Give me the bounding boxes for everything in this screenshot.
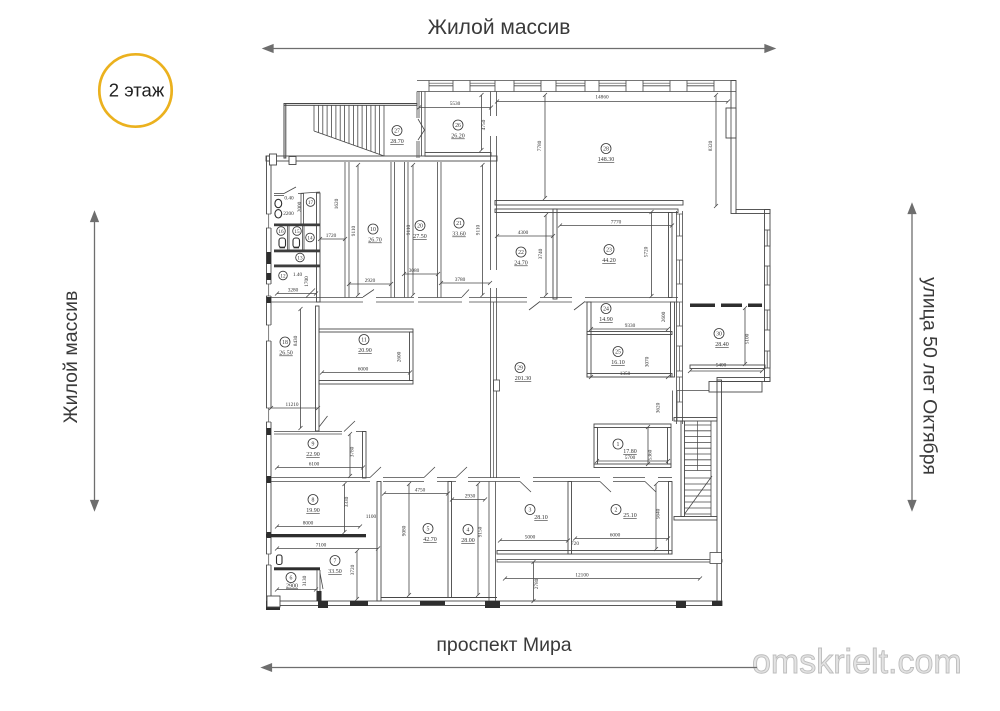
svg-text:9: 9 bbox=[312, 442, 315, 448]
svg-text:3740: 3740 bbox=[538, 248, 544, 259]
svg-text:4750: 4750 bbox=[415, 488, 426, 494]
svg-text:7780: 7780 bbox=[537, 140, 543, 151]
svg-text:8430: 8430 bbox=[293, 335, 299, 346]
svg-text:2600: 2600 bbox=[661, 311, 667, 322]
svg-text:16: 16 bbox=[278, 229, 284, 235]
svg-text:720: 720 bbox=[571, 541, 579, 547]
svg-text:5100: 5100 bbox=[745, 333, 751, 344]
svg-text:21: 21 bbox=[456, 221, 462, 227]
svg-text:5640: 5640 bbox=[656, 508, 662, 519]
svg-text:18: 18 bbox=[282, 340, 288, 346]
svg-text:2 этаж: 2 этаж bbox=[109, 80, 165, 101]
svg-text:1620: 1620 bbox=[334, 198, 340, 209]
svg-text:12: 12 bbox=[280, 274, 286, 280]
svg-text:3070: 3070 bbox=[645, 356, 651, 367]
svg-text:15: 15 bbox=[294, 229, 300, 235]
svg-text:проспект Мира: проспект Мира bbox=[436, 634, 571, 656]
svg-text:24: 24 bbox=[603, 307, 609, 313]
svg-text:12100: 12100 bbox=[575, 573, 589, 579]
svg-text:3620: 3620 bbox=[656, 402, 662, 413]
svg-text:5720: 5720 bbox=[644, 246, 650, 257]
svg-text:25.10: 25.10 bbox=[623, 513, 637, 519]
svg-text:22.90: 22.90 bbox=[306, 452, 320, 458]
svg-text:17.80: 17.80 bbox=[623, 449, 637, 455]
svg-text:27.50: 27.50 bbox=[413, 234, 427, 240]
svg-text:3: 3 bbox=[529, 508, 532, 514]
svg-text:4: 4 bbox=[467, 528, 470, 534]
svg-text:9080: 9080 bbox=[402, 525, 408, 536]
svg-text:26.70: 26.70 bbox=[368, 238, 382, 244]
svg-text:5: 5 bbox=[427, 527, 430, 533]
svg-text:10: 10 bbox=[370, 227, 376, 233]
svg-text:28.70: 28.70 bbox=[390, 139, 404, 145]
svg-text:3280: 3280 bbox=[288, 288, 299, 294]
svg-text:24.70: 24.70 bbox=[514, 261, 528, 267]
svg-text:7100: 7100 bbox=[316, 543, 327, 549]
svg-text:3130: 3130 bbox=[302, 575, 308, 586]
svg-text:7770: 7770 bbox=[611, 220, 622, 226]
svg-text:148.30: 148.30 bbox=[598, 157, 615, 163]
svg-text:33.60: 33.60 bbox=[452, 232, 466, 238]
svg-text:9330: 9330 bbox=[625, 323, 636, 329]
svg-text:26.20: 26.20 bbox=[451, 134, 465, 140]
svg-text:8: 8 bbox=[312, 498, 315, 504]
svg-text:9110: 9110 bbox=[406, 224, 412, 235]
svg-text:4750: 4750 bbox=[481, 119, 487, 130]
svg-text:22: 22 bbox=[518, 250, 524, 256]
svg-text:13: 13 bbox=[297, 256, 303, 262]
svg-text:9110: 9110 bbox=[476, 224, 482, 235]
svg-text:5700: 5700 bbox=[625, 455, 636, 461]
svg-text:7: 7 bbox=[334, 559, 337, 565]
svg-text:14: 14 bbox=[307, 236, 313, 242]
svg-text:28: 28 bbox=[603, 147, 609, 153]
svg-text:2: 2 bbox=[615, 508, 618, 514]
svg-text:16.10: 16.10 bbox=[611, 360, 625, 366]
svg-text:2930: 2930 bbox=[465, 494, 476, 500]
svg-text:28.40: 28.40 bbox=[715, 342, 729, 348]
svg-text:2920: 2920 bbox=[365, 278, 376, 284]
svg-text:33.50: 33.50 bbox=[328, 569, 342, 575]
svg-text:1.40: 1.40 bbox=[293, 272, 303, 278]
svg-text:Жилой массив: Жилой массив bbox=[428, 16, 571, 39]
svg-text:3080: 3080 bbox=[409, 268, 420, 274]
svg-text:20.90: 20.90 bbox=[358, 348, 372, 354]
svg-text:Жилой массив: Жилой массив bbox=[60, 291, 82, 424]
svg-text:26: 26 bbox=[455, 123, 461, 129]
svg-text:5360: 5360 bbox=[648, 449, 654, 460]
svg-text:5530: 5530 bbox=[450, 101, 461, 107]
svg-text:27: 27 bbox=[394, 129, 400, 135]
svg-text:23: 23 bbox=[606, 248, 612, 254]
svg-text:11: 11 bbox=[361, 338, 367, 344]
svg-text:1100: 1100 bbox=[366, 514, 377, 520]
svg-text:20: 20 bbox=[417, 224, 423, 230]
svg-text:3780: 3780 bbox=[350, 446, 356, 457]
svg-text:1720: 1720 bbox=[326, 233, 337, 239]
svg-text:28.10: 28.10 bbox=[534, 515, 548, 521]
svg-text:1: 1 bbox=[617, 442, 620, 448]
svg-text:omskrielt.com: omskrielt.com bbox=[752, 643, 962, 681]
svg-text:8320: 8320 bbox=[708, 140, 714, 151]
svg-text:29: 29 bbox=[517, 366, 523, 372]
svg-text:6000: 6000 bbox=[358, 367, 369, 373]
svg-text:14.90: 14.90 bbox=[599, 317, 613, 323]
svg-text:19.90: 19.90 bbox=[306, 508, 320, 514]
svg-text:30: 30 bbox=[716, 332, 722, 338]
svg-text:6: 6 bbox=[290, 576, 293, 582]
svg-text:2780: 2780 bbox=[534, 578, 540, 589]
svg-text:1700: 1700 bbox=[304, 276, 310, 287]
svg-text:9110: 9110 bbox=[351, 225, 357, 236]
svg-text:3330: 3330 bbox=[344, 496, 350, 507]
svg-text:6100: 6100 bbox=[309, 462, 320, 468]
svg-text:9150: 9150 bbox=[478, 526, 484, 537]
svg-text:11210: 11210 bbox=[285, 402, 298, 408]
svg-text:2900: 2900 bbox=[286, 584, 298, 590]
svg-text:5000: 5000 bbox=[525, 535, 536, 541]
svg-text:улица 50 лет Октября: улица 50 лет Октября bbox=[919, 277, 941, 475]
svg-text:26.50: 26.50 bbox=[279, 351, 293, 357]
svg-text:3780: 3780 bbox=[455, 277, 466, 283]
svg-text:2600: 2600 bbox=[397, 351, 403, 362]
svg-text:17: 17 bbox=[308, 200, 314, 206]
svg-text:42.70: 42.70 bbox=[423, 537, 437, 543]
svg-text:2000: 2000 bbox=[297, 201, 303, 212]
svg-text:28.00: 28.00 bbox=[461, 538, 475, 544]
svg-text:6000: 6000 bbox=[610, 533, 621, 539]
svg-text:201.30: 201.30 bbox=[515, 376, 532, 382]
svg-text:2200: 2200 bbox=[283, 211, 294, 217]
svg-text:5400: 5400 bbox=[716, 363, 727, 369]
svg-text:3720: 3720 bbox=[350, 564, 356, 575]
svg-text:4300: 4300 bbox=[518, 230, 529, 236]
svg-text:1350: 1350 bbox=[620, 371, 631, 377]
svg-text:14860: 14860 bbox=[595, 95, 609, 101]
svg-text:25: 25 bbox=[615, 350, 621, 356]
svg-text:44.20: 44.20 bbox=[602, 258, 616, 264]
svg-text:0.40: 0.40 bbox=[284, 196, 294, 202]
svg-text:8000: 8000 bbox=[303, 521, 314, 527]
